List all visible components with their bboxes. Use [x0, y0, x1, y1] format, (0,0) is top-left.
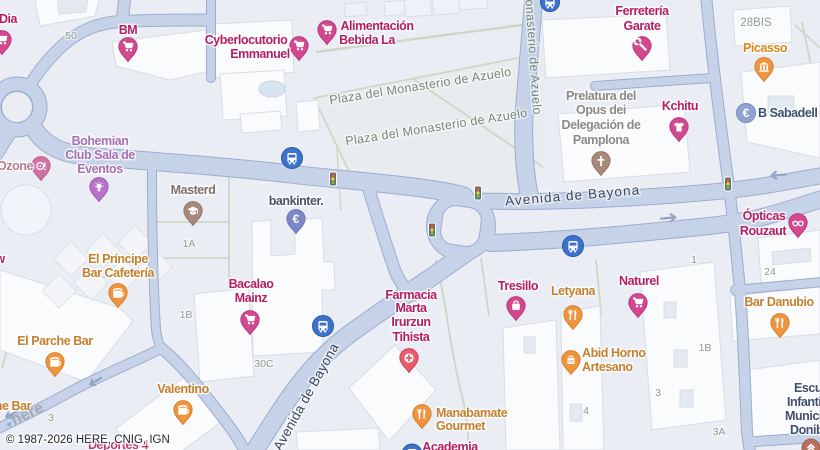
svg-text:Eventos: Eventos — [77, 162, 123, 176]
svg-text:Cyberlocutorio: Cyberlocutorio — [205, 33, 288, 47]
svg-text:Ozone: Ozone — [0, 159, 33, 173]
svg-text:Club Sala de: Club Sala de — [65, 148, 135, 162]
svg-text:Ferretería: Ferretería — [615, 4, 670, 18]
svg-text:Marta: Marta — [395, 301, 428, 315]
svg-text:Prelatura del: Prelatura del — [566, 89, 636, 103]
svg-text:Bacalao: Bacalao — [229, 277, 275, 291]
svg-text:Academia: Academia — [422, 440, 479, 450]
svg-text:Emmanuel: Emmanuel — [230, 47, 290, 61]
svg-text:w: w — [0, 252, 5, 266]
svg-text:28BIS: 28BIS — [740, 17, 772, 29]
svg-text:24: 24 — [764, 266, 776, 278]
svg-text:Kchitu: Kchitu — [662, 99, 698, 113]
svg-text:Donibane: Donibane — [790, 423, 820, 437]
svg-text:Bebida La: Bebida La — [339, 33, 396, 47]
svg-text:Artesano: Artesano — [582, 360, 633, 374]
svg-text:Valentino: Valentino — [157, 382, 209, 396]
svg-text:Dia: Dia — [0, 12, 19, 26]
svg-text:3A: 3A — [713, 426, 726, 438]
svg-text:Opus dei: Opus dei — [576, 103, 626, 117]
svg-text:Gourmet: Gourmet — [436, 419, 486, 433]
svg-text:Bar Cafetería: Bar Cafetería — [82, 266, 155, 280]
svg-text:Infantil: Infantil — [787, 395, 820, 409]
svg-text:© 1987-2026 HERE, CNIG, IGN: © 1987-2026 HERE, CNIG, IGN — [6, 434, 170, 446]
svg-text:Delegación de: Delegación de — [562, 118, 641, 132]
svg-text:1: 1 — [691, 254, 697, 266]
svg-text:Pamplona: Pamplona — [573, 133, 631, 147]
svg-text:3: 3 — [655, 387, 661, 399]
svg-text:Mainz: Mainz — [235, 291, 268, 305]
svg-text:Rouzaut: Rouzaut — [740, 224, 787, 238]
svg-text:Bar Danubio: Bar Danubio — [744, 295, 814, 309]
svg-text:1B: 1B — [699, 342, 712, 354]
svg-text:3: 3 — [48, 412, 54, 424]
svg-text:BM: BM — [119, 23, 138, 37]
svg-text:Municipal: Municipal — [785, 409, 820, 423]
svg-text:El Parche Bar: El Parche Bar — [17, 334, 93, 348]
svg-text:Masterd: Masterd — [171, 183, 216, 197]
svg-text:bankinter.: bankinter. — [269, 194, 324, 208]
svg-text:4: 4 — [583, 405, 589, 417]
svg-text:Irurzun: Irurzun — [391, 315, 430, 329]
svg-text:Garate: Garate — [624, 19, 661, 33]
svg-text:Bohemian: Bohemian — [72, 134, 129, 148]
svg-text:1A: 1A — [183, 238, 196, 250]
svg-text:Farmacia: Farmacia — [385, 288, 438, 302]
svg-text:Tihista: Tihista — [393, 330, 431, 344]
svg-text:Naturel: Naturel — [619, 274, 659, 288]
svg-text:Tresillo: Tresillo — [498, 279, 539, 293]
svg-text:Escuela: Escuela — [794, 381, 820, 395]
svg-text:Ópticas: Ópticas — [743, 208, 786, 223]
svg-text:Picasso: Picasso — [743, 41, 788, 55]
svg-text:Abid Horno: Abid Horno — [582, 346, 646, 360]
svg-text:Letyana: Letyana — [551, 284, 597, 298]
svg-text:Manabamate: Manabamate — [436, 406, 508, 420]
svg-text:50: 50 — [65, 30, 77, 42]
svg-text:B Sabadell: B Sabadell — [758, 106, 817, 120]
svg-text:Alimentación: Alimentación — [340, 19, 413, 33]
svg-text:30C: 30C — [254, 358, 274, 370]
svg-text:El Príncipe: El Príncipe — [88, 252, 148, 266]
svg-text:1B: 1B — [180, 309, 193, 321]
